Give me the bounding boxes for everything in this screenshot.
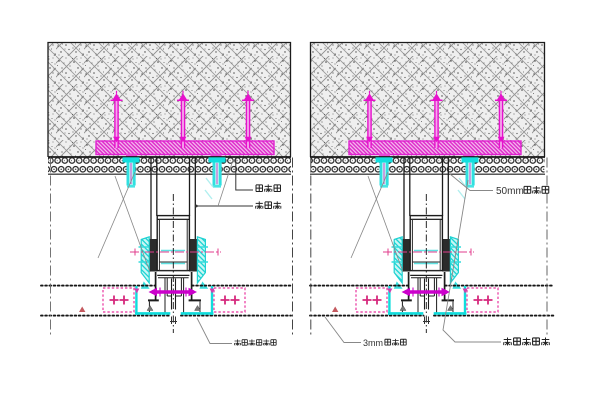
svg-text:50mm: 50mm (496, 186, 524, 197)
svg-text:3mm: 3mm (363, 338, 383, 348)
